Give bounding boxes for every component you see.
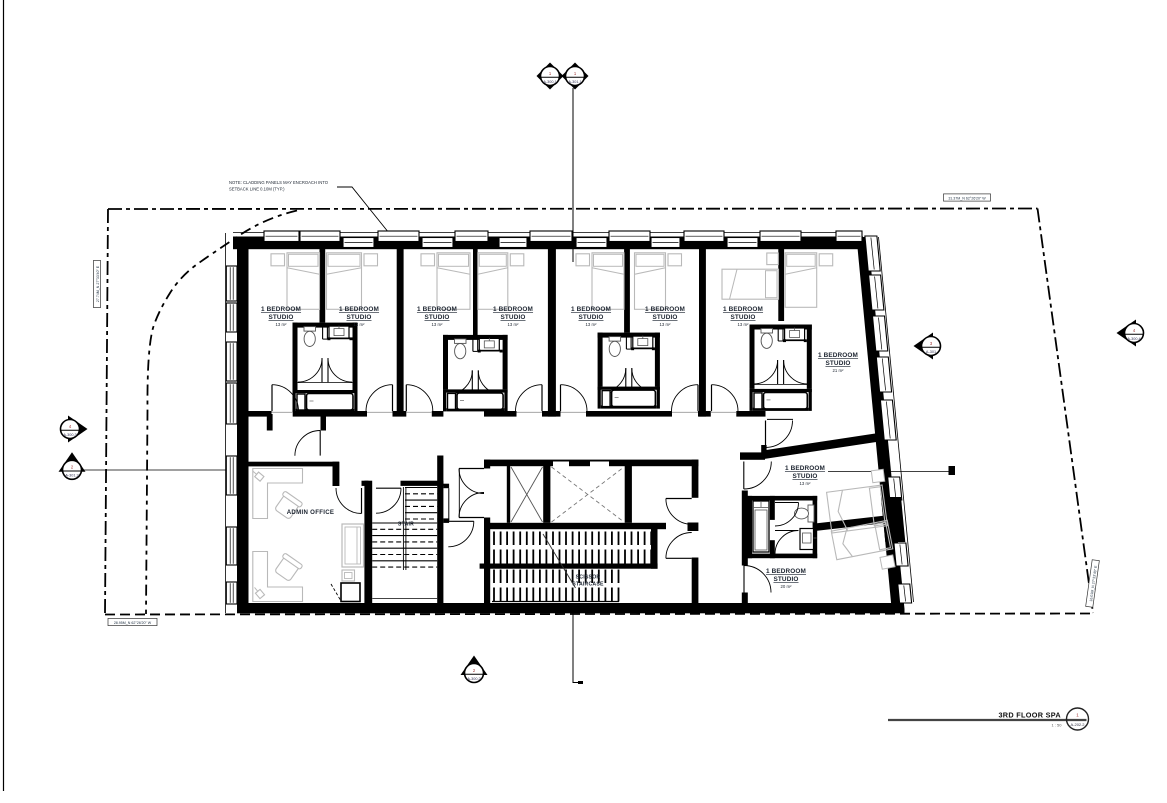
svg-text:STAIRCASE: STAIRCASE xyxy=(572,582,604,588)
svg-text:1 BEDROOM: 1 BEDROOM xyxy=(493,306,533,313)
svg-text:13 m²: 13 m² xyxy=(354,322,366,327)
svg-text:STUDIO: STUDIO xyxy=(578,314,603,321)
svg-text:1: 1 xyxy=(1076,713,1079,718)
svg-text:ADMIN OFFICE: ADMIN OFFICE xyxy=(287,509,335,516)
svg-text:A-300.3: A-300.3 xyxy=(63,433,76,437)
svg-text:1 BEDROOM: 1 BEDROOM xyxy=(766,568,806,575)
svg-text:STUDIO: STUDIO xyxy=(652,314,677,321)
svg-text:1 BEDROOM: 1 BEDROOM xyxy=(785,465,825,472)
svg-text:3RD FLOOR SPA: 3RD FLOOR SPA xyxy=(998,711,1061,720)
svg-text:1 BEDROOM: 1 BEDROOM xyxy=(571,306,611,313)
svg-text:SETBACK LINE 0.10M (TYP.): SETBACK LINE 0.10M (TYP.) xyxy=(229,187,285,192)
svg-text:A-300.2: A-300.2 xyxy=(467,677,480,681)
svg-text:A-301: A-301 xyxy=(926,350,936,354)
svg-text:13 m²: 13 m² xyxy=(432,322,444,327)
svg-text:STUDIO: STUDIO xyxy=(500,314,525,321)
svg-text:13 m²: 13 m² xyxy=(276,322,288,327)
svg-text:STUDIO: STUDIO xyxy=(268,314,293,321)
svg-text:13 m²: 13 m² xyxy=(586,322,598,327)
svg-text:13 m²: 13 m² xyxy=(660,322,672,327)
svg-text:27.74M_N 27°33'40" E: 27.74M_N 27°33'40" E xyxy=(96,265,100,302)
svg-text:1 BEDROOM: 1 BEDROOM xyxy=(818,352,858,359)
svg-text:A-301.1: A-301.1 xyxy=(568,80,581,84)
svg-text:13 m²: 13 m² xyxy=(800,481,812,486)
svg-text:31.37M_N 62°26'20" W: 31.37M_N 62°26'20" W xyxy=(948,197,986,201)
svg-text:1 BEDROOM: 1 BEDROOM xyxy=(339,306,379,313)
svg-text:13 m²: 13 m² xyxy=(508,322,520,327)
svg-text:STUDIO: STUDIO xyxy=(825,360,850,367)
svg-text:A-300.4: A-300.4 xyxy=(1127,337,1140,341)
svg-text:NOTE: CLADDING PANELS MAY ENCR: NOTE: CLADDING PANELS MAY ENCROACH INTO xyxy=(229,180,329,185)
svg-text:STUDIO: STUDIO xyxy=(773,576,798,583)
svg-text:20 m²: 20 m² xyxy=(781,584,793,589)
svg-text:STAIR: STAIR xyxy=(398,522,414,528)
svg-text:1 : 50: 1 : 50 xyxy=(1051,723,1062,728)
svg-text:STUDIO: STUDIO xyxy=(346,314,371,321)
svg-text:STUDIO: STUDIO xyxy=(424,314,449,321)
svg-text:1 BEDROOM: 1 BEDROOM xyxy=(645,306,685,313)
svg-text:21 m²: 21 m² xyxy=(833,368,845,373)
svg-text:28.95M_N 62°26'20" W: 28.95M_N 62°26'20" W xyxy=(114,621,152,625)
svg-text:SCISSOR: SCISSOR xyxy=(576,575,601,581)
svg-text:1 BEDROOM: 1 BEDROOM xyxy=(261,306,301,313)
svg-text:A-202.2: A-202.2 xyxy=(1070,722,1085,727)
svg-text:STUDIO: STUDIO xyxy=(792,473,817,480)
svg-text:A-300.1: A-300.1 xyxy=(543,80,556,84)
svg-text:A-301.2: A-301.2 xyxy=(65,474,78,478)
svg-text:1 BEDROOM: 1 BEDROOM xyxy=(723,306,763,313)
svg-text:13 m²: 13 m² xyxy=(738,322,750,327)
svg-text:1 BEDROOM: 1 BEDROOM xyxy=(417,306,457,313)
svg-text:STUDIO: STUDIO xyxy=(730,314,755,321)
